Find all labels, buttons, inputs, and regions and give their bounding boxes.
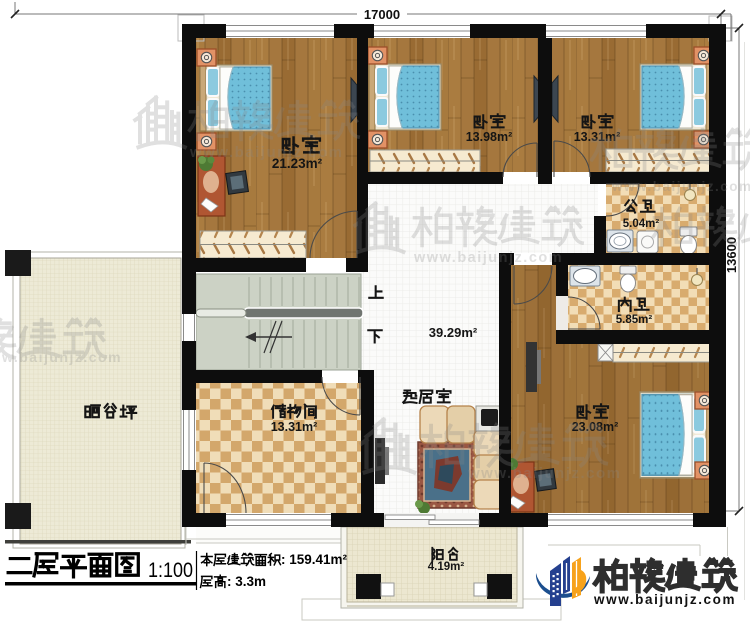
svg-text:www.baijunjz.com: www.baijunjz.com: [611, 179, 750, 194]
svg-text:1:100: 1:100: [148, 559, 193, 582]
svg-text:17000: 17000: [364, 7, 400, 22]
svg-text:www.baijunjz.com: www.baijunjz.com: [467, 465, 621, 482]
svg-text:www.baijunjz.com: www.baijunjz.com: [189, 144, 343, 161]
svg-text:www.baijunjz.com: www.baijunjz.com: [413, 250, 563, 266]
svg-text:4.19m²: 4.19m²: [428, 561, 465, 573]
svg-text:13.31m²: 13.31m²: [271, 420, 318, 434]
svg-text:13.98m²: 13.98m²: [466, 130, 513, 144]
svg-text:: 3.3m: : 3.3m: [227, 574, 266, 589]
svg-text:39.29m²: 39.29m²: [429, 325, 478, 340]
svg-text:5.85m²: 5.85m²: [616, 314, 653, 326]
svg-text:: 159.41m²: : 159.41m²: [281, 552, 348, 567]
svg-text:w.baijunjz.com: w.baijunjz.com: [1, 349, 122, 365]
svg-text:5.04m²: 5.04m²: [623, 218, 660, 230]
svg-text:www.baijunjz.com: www.baijunjz.com: [593, 592, 736, 607]
